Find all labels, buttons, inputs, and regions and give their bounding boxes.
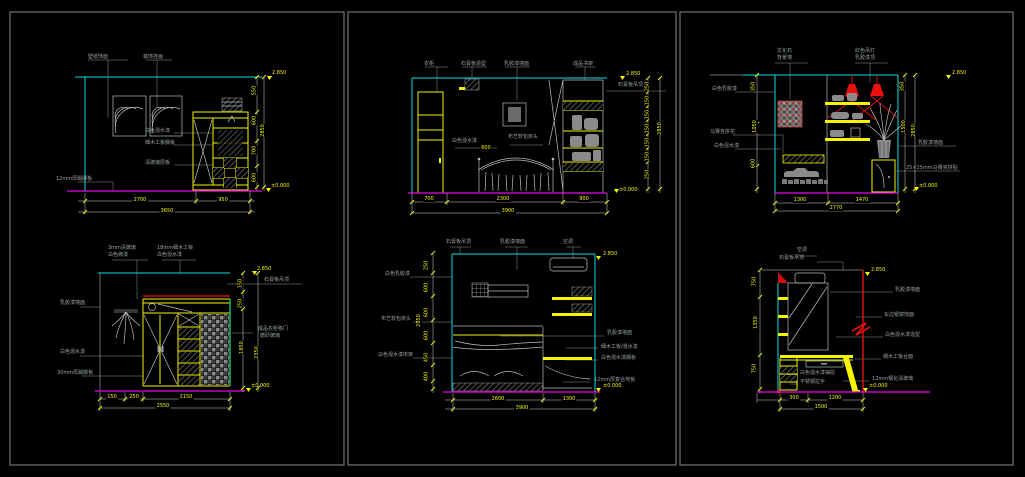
annotation-label: 25×25mm马赛克拼贴 bbox=[906, 165, 958, 171]
annotation-label: 石膏板造型 bbox=[461, 61, 486, 67]
annotation-label: 3mm清玻璃 bbox=[108, 245, 136, 251]
annotation-label: 白色混水漆造型 bbox=[885, 332, 920, 338]
annotation-label: 乳胶漆顶 bbox=[855, 55, 875, 61]
dimension-label: 1850 bbox=[240, 341, 245, 354]
dimension-label: 450 bbox=[424, 353, 429, 363]
dimension-label: 350 bbox=[900, 82, 905, 92]
annotation-label: 乳胶漆墙面 bbox=[895, 287, 920, 293]
annotation-label: 白色混水漆床架 bbox=[378, 352, 413, 358]
annotation-label: 白色乳胶漆 bbox=[385, 271, 410, 277]
annotation-label: 装饰挂画 bbox=[143, 54, 163, 60]
dimension-label: 1500 bbox=[814, 405, 829, 410]
dimension-label: 750 bbox=[752, 364, 757, 374]
annotation-label: 白色混水漆 bbox=[714, 143, 739, 149]
dimension-label: 600 bbox=[424, 308, 429, 318]
annotation-label: 不锈钢拉手 bbox=[800, 379, 825, 385]
dimension-label: 900 bbox=[578, 197, 590, 202]
annotation-label: 空调 bbox=[563, 239, 573, 245]
annotation-label: 18mm细木工板 bbox=[157, 245, 193, 251]
annotation-label: 空调 bbox=[797, 247, 807, 253]
annotation-label: 背景墙 bbox=[777, 55, 792, 61]
dimension-label: 2700 bbox=[133, 198, 148, 203]
annotation-label: 红色吊灯 bbox=[855, 48, 875, 54]
level-label: 2.850 bbox=[257, 267, 271, 272]
annotation-label: 12mm钢化清玻璃 bbox=[872, 376, 913, 382]
annotation-label: 布艺软包床头 bbox=[381, 316, 411, 322]
annotation-label: 衣柜 bbox=[424, 61, 434, 67]
annotation-label: 30mm厚踢脚板 bbox=[57, 370, 93, 376]
dimension-label: 400 bbox=[424, 372, 429, 382]
annotation-label: 文化石 bbox=[777, 48, 792, 54]
dimension-label: 600 bbox=[424, 283, 429, 293]
level-label: ±0.000 bbox=[603, 384, 622, 389]
annotation-layer: 壁纸饰面 装饰挂画 白色混水漆 细木工板搁板 清玻璃层板 12mm厚踢脚板 27… bbox=[0, 0, 1025, 477]
dimension-label: 150 bbox=[645, 138, 650, 148]
dimension-label: 1200 bbox=[828, 396, 843, 401]
annotation-label: 白色混水漆 bbox=[145, 128, 170, 134]
dimension-label: 250 bbox=[645, 170, 650, 180]
level-label: ±0.000 bbox=[919, 184, 938, 189]
dimension-label: 2850 bbox=[417, 314, 422, 327]
dimension-label: 2770 bbox=[829, 206, 844, 211]
dimension-label: 750 bbox=[752, 277, 757, 287]
level-label: ±0.000 bbox=[619, 188, 638, 193]
level-label: ±0.000 bbox=[869, 384, 888, 389]
dimension-label: 700 bbox=[423, 197, 435, 202]
annotation-label: 石膏板吊顶 bbox=[779, 255, 804, 261]
annotation-label: 磨砂玻璃 bbox=[260, 333, 280, 339]
dimension-label: 150 bbox=[645, 124, 650, 134]
annotation-label: 成品衣柜移门 bbox=[258, 326, 288, 332]
dimension-label: 600 bbox=[424, 331, 429, 341]
annotation-label: 白色混水漆 bbox=[452, 138, 477, 144]
annotation-label: 车边银镜饰面 bbox=[884, 312, 914, 318]
annotation-label: 12mm厚踢脚板 bbox=[56, 176, 92, 182]
dimension-label: 250 bbox=[645, 82, 650, 92]
annotation-label: 白色混水漆抽屉 bbox=[800, 370, 835, 376]
dimension-label: 2150 bbox=[179, 395, 194, 400]
annotation-label: 乳胶漆墙面 bbox=[918, 140, 943, 146]
dimension-label: 600 bbox=[480, 146, 492, 151]
dimension-label: 3900 bbox=[501, 209, 516, 214]
level-label: ±0.000 bbox=[251, 384, 270, 389]
annotation-label: 石膏板吊顶 bbox=[264, 277, 289, 283]
annotation-label: 白色乳胶漆 bbox=[712, 86, 737, 92]
dimension-label: 1300 bbox=[793, 198, 808, 203]
dimension-label: 350 bbox=[751, 82, 756, 92]
annotation-label: 石膏板吊顶 bbox=[446, 239, 471, 245]
dimension-label: 600 bbox=[751, 159, 756, 169]
cad-canvas: 壁纸饰面 装饰挂画 白色混水漆 细木工板搁板 清玻璃层板 12mm厚踢脚板 27… bbox=[0, 0, 1025, 477]
annotation-label: 白色混水漆 bbox=[157, 252, 182, 258]
dimension-label: 1500 bbox=[902, 120, 907, 133]
dimension-label: 150 bbox=[645, 110, 650, 120]
dimension-label: 250 bbox=[128, 395, 140, 400]
dimension-label: 300 bbox=[788, 396, 800, 401]
dimension-label: 600 bbox=[252, 116, 257, 126]
annotation-label: 清玻璃层板 bbox=[145, 160, 170, 166]
level-label: 2.850 bbox=[952, 71, 966, 76]
dimension-label: 700 bbox=[252, 146, 257, 156]
annotation-label: 成品书架 bbox=[573, 61, 593, 67]
dimension-label: 550 bbox=[252, 86, 257, 96]
level-label: 2.850 bbox=[626, 72, 640, 77]
annotation-label: 白色混水漆 bbox=[60, 349, 85, 355]
dimension-label: 3650 bbox=[160, 209, 175, 214]
level-label: ±0.000 bbox=[271, 184, 290, 189]
level-label: 2.850 bbox=[603, 252, 617, 257]
dimension-label: 150 bbox=[645, 152, 650, 162]
annotation-label: 马赛克拼花 bbox=[710, 129, 735, 135]
dimension-label: 150 bbox=[106, 395, 118, 400]
dimension-label: 150 bbox=[238, 279, 243, 289]
annotation-label: 壁纸饰面 bbox=[88, 54, 108, 60]
dimension-label: 2850 bbox=[261, 124, 266, 137]
dimension-label: 2550 bbox=[156, 404, 171, 409]
dimension-label: 250 bbox=[424, 261, 429, 271]
dimension-label: 1470 bbox=[855, 198, 870, 203]
dimension-label: 2850 bbox=[658, 122, 663, 135]
dimension-label: 1350 bbox=[754, 316, 759, 329]
dimension-label: 600 bbox=[252, 173, 257, 183]
dimension-label: 250 bbox=[238, 299, 243, 309]
annotation-label: 石膏板吊顶 bbox=[618, 82, 643, 88]
annotation-label: 细木工板/混水漆 bbox=[601, 344, 638, 350]
dimension-label: 1300 bbox=[562, 397, 577, 402]
level-label: 2.850 bbox=[871, 268, 885, 273]
annotation-label: 细木工板搁板 bbox=[145, 140, 175, 146]
level-label: 2.850 bbox=[272, 71, 286, 76]
annotation-label: 乳胶漆墙面 bbox=[60, 300, 85, 306]
dimension-label: 1050 bbox=[753, 120, 758, 133]
annotation-label: 白色烤漆 bbox=[108, 252, 128, 258]
annotation-label: 细木工板台面 bbox=[883, 354, 913, 360]
annotation-label: 白色混水漆搁板 bbox=[601, 355, 636, 361]
dimension-label: 3900 bbox=[515, 406, 530, 411]
dimension-label: 2850 bbox=[912, 124, 917, 137]
dimension-label: 2600 bbox=[491, 397, 506, 402]
dimension-label: 2300 bbox=[496, 197, 511, 202]
annotation-label: 布艺软包床头 bbox=[508, 134, 538, 140]
dimension-label: 2350 bbox=[255, 346, 260, 359]
dimension-label: 150 bbox=[645, 96, 650, 106]
dimension-label: 950 bbox=[217, 198, 229, 203]
annotation-label: 乳胶漆墙面 bbox=[504, 61, 529, 67]
annotation-label: 乳胶漆墙面 bbox=[500, 239, 525, 245]
annotation-label: 乳胶漆墙面 bbox=[607, 330, 632, 336]
